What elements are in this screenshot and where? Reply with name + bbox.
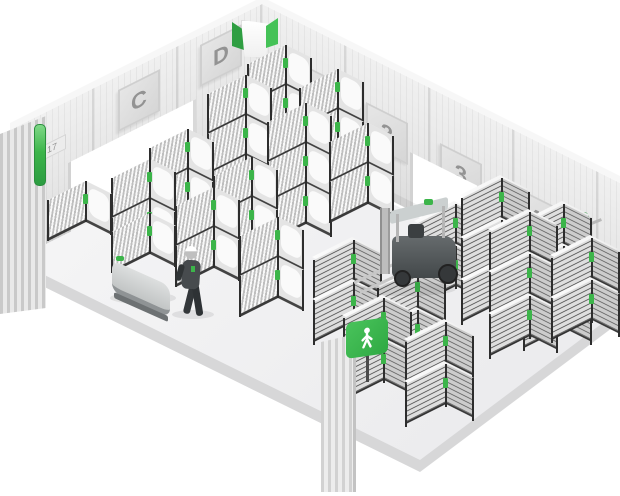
kanban-tag-icon (499, 192, 504, 202)
kanban-tag-icon (303, 156, 308, 166)
kanban-tag-icon (527, 226, 532, 236)
kanban-tag-icon (335, 122, 340, 132)
kanban-tag-icon (589, 252, 594, 262)
forklift-seat (408, 224, 424, 238)
kanban-tag-icon (147, 226, 152, 236)
warehouse-worker (174, 244, 214, 322)
warehouse-illustration: C D 17 1 2 3 4 (0, 0, 620, 496)
kanban-tag-icon (283, 58, 288, 68)
sign-white-face (241, 20, 270, 58)
worker-badge-icon (191, 266, 195, 272)
rack-tier (552, 300, 620, 342)
kanban-tag-icon (527, 310, 532, 320)
forklift-wheel (394, 270, 411, 287)
walking-person-icon (358, 326, 376, 351)
kanban-tag-icon (335, 82, 340, 92)
rack-tier (490, 316, 558, 358)
kanban-tag-icon (443, 378, 448, 388)
kanban-tag-icon (83, 194, 88, 204)
kanban-tag-icon (365, 136, 370, 146)
kanban-tag-icon (275, 230, 280, 240)
kanban-tag-icon (561, 218, 566, 228)
pedestrian-sign-plate (346, 317, 388, 359)
kanban-tag-icon (243, 88, 248, 98)
kanban-tag-icon (365, 176, 370, 186)
forklift-wheel (438, 264, 458, 284)
agv-status-light-icon (116, 256, 124, 261)
rack-tier (240, 276, 304, 316)
agv-cart (108, 252, 180, 308)
kanban-tag-icon (303, 196, 308, 206)
kanban-tag-icon (443, 336, 448, 346)
kanban-tag-icon (589, 294, 594, 304)
kanban-tag-icon (303, 116, 308, 126)
worker-shadow (172, 310, 214, 319)
sign-green-wing-right (266, 18, 278, 52)
worker-torso (181, 259, 201, 289)
kanban-tag-icon (527, 268, 532, 278)
forklift-cab-post (396, 214, 399, 242)
kanban-tag-icon (283, 98, 288, 108)
andon-light-left-icon (34, 124, 46, 186)
forklift-mast (380, 208, 390, 274)
kanban-tag-icon (147, 172, 152, 182)
pedestrian-sign (346, 320, 388, 386)
rack-tier (406, 384, 474, 426)
sign-pole (366, 352, 369, 382)
rack-tier (48, 200, 112, 240)
kanban-tag-icon (249, 210, 254, 220)
kanban-tag-icon (243, 128, 248, 138)
kanban-tag-icon (249, 170, 254, 180)
forklift-beacon-icon (424, 199, 433, 205)
kanban-tag-icon (211, 200, 216, 210)
forklift (352, 192, 467, 300)
forklift-cab-post (442, 206, 445, 238)
worker-head (185, 246, 197, 259)
kanban-tag-icon (185, 142, 190, 152)
kanban-tag-icon (275, 270, 280, 280)
kanban-tag-icon (185, 182, 190, 192)
